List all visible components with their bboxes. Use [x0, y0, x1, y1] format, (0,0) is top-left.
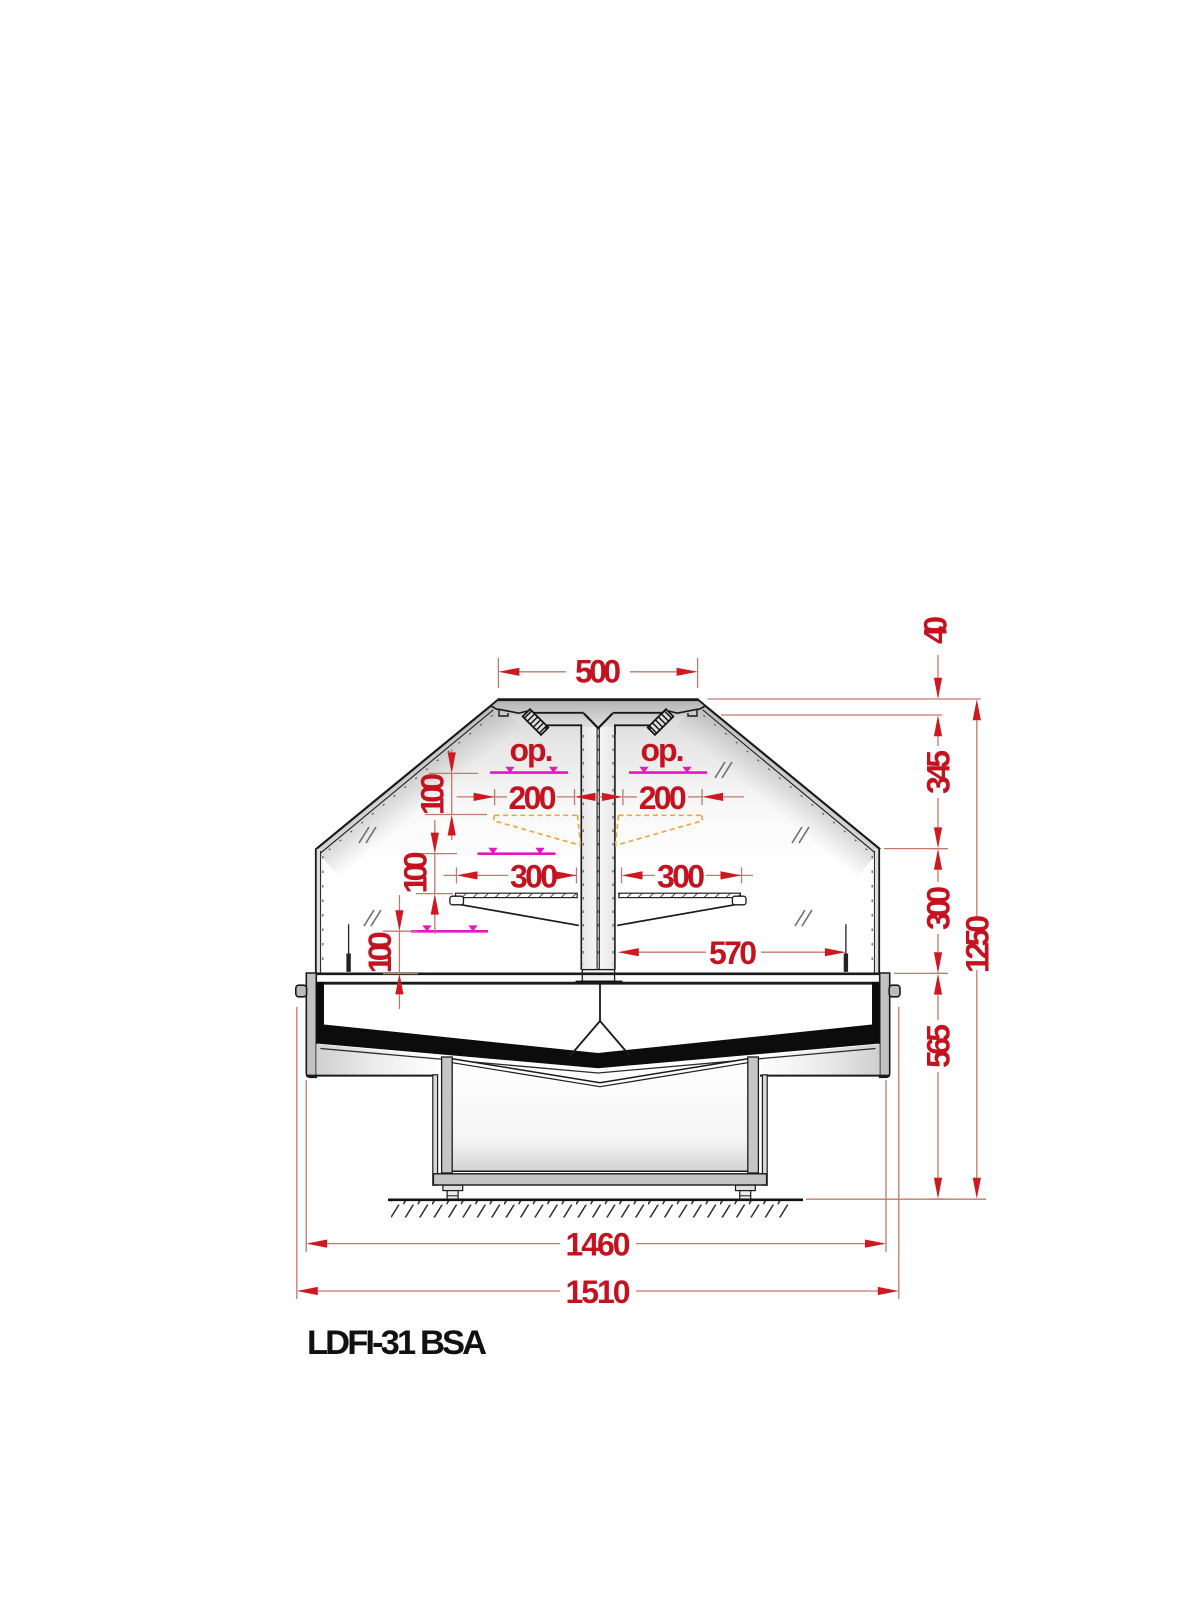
svg-text:1510: 1510 [566, 1274, 631, 1310]
svg-text:LDFI-31 BSA: LDFI-31 BSA [307, 1324, 487, 1362]
svg-text:1460: 1460 [566, 1226, 631, 1262]
svg-text:100: 100 [362, 931, 398, 973]
svg-text:300: 300 [657, 858, 705, 894]
svg-text:500: 500 [575, 654, 621, 690]
svg-text:570: 570 [709, 935, 757, 971]
svg-text:op.: op. [510, 732, 554, 768]
svg-text:565: 565 [921, 1024, 957, 1068]
svg-text:1250: 1250 [960, 915, 996, 973]
svg-text:345: 345 [921, 750, 957, 794]
svg-text:100: 100 [415, 773, 451, 815]
svg-text:200: 200 [639, 780, 687, 816]
svg-text:100: 100 [398, 852, 434, 894]
svg-text:200: 200 [509, 780, 557, 816]
svg-text:300: 300 [510, 858, 558, 894]
svg-text:40: 40 [918, 616, 954, 644]
svg-text:300: 300 [921, 886, 957, 930]
svg-text:op.: op. [641, 732, 685, 768]
